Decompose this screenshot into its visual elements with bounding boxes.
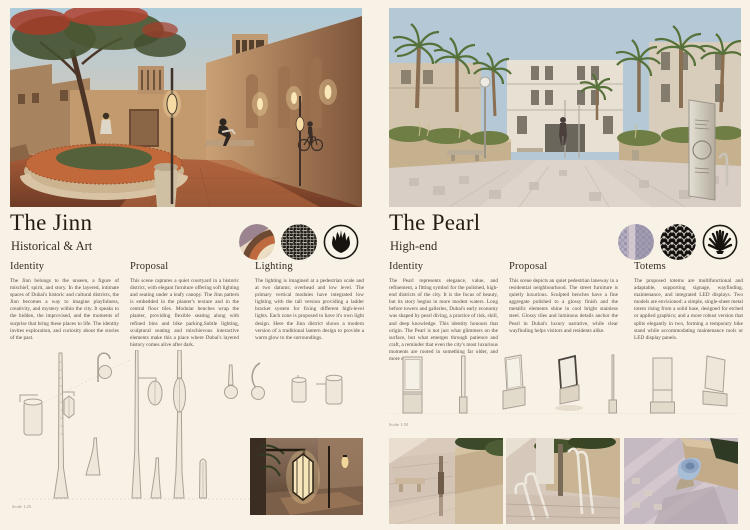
jinn-identity-heading: Identity	[10, 261, 119, 272]
pearl-subtitle: High-end	[390, 239, 437, 254]
pearl-laneway-illustration	[389, 8, 741, 207]
hex-net-pattern-icon	[281, 224, 317, 260]
pearl-title: The Pearl	[389, 210, 480, 236]
jinn-lighting-column: Lighting The lighting is imagined at a p…	[255, 261, 364, 342]
pearl-identity-heading: Identity	[389, 261, 498, 272]
jinn-courtyard-illustration	[10, 8, 362, 207]
pearl-totem-photo-1	[389, 438, 503, 524]
pearl-scale-label: Scale 1:50	[389, 422, 408, 427]
pearl-totem-drawings	[389, 350, 741, 420]
jinn-scale-label: Scale 1:25	[12, 504, 31, 509]
jinn-courtyard-render	[10, 8, 362, 207]
pearl-totem-line-drawings	[389, 350, 741, 420]
jinn-proposal-column: Proposal This scene captures a quiet cou…	[130, 261, 239, 349]
pearl-totems-column: Totems The proposed totems are multifunc…	[634, 261, 743, 342]
pearl-totems-heading: Totems	[634, 261, 743, 272]
pearl-identity-column: Identity The Pearl represents elegance, …	[389, 261, 498, 363]
jinn-swatches	[239, 224, 359, 260]
jinn-lantern-night-photo	[250, 438, 363, 515]
pearl-proposal-column: Proposal This scene depicts an quiet ped…	[509, 261, 618, 335]
jinn-identity-column: Identity The Jinn belongs to the unseen,…	[10, 261, 119, 342]
pearl-laneway-render	[389, 8, 741, 207]
flame-emblem-icon	[323, 224, 359, 260]
jinn-subtitle: Historical & Art	[11, 239, 92, 254]
pearl-totems-body: The proposed totems are multifunctional …	[634, 278, 743, 342]
jinn-title: The Jinn	[10, 210, 92, 236]
pearl-swatches	[618, 224, 738, 260]
pearl-proposal-heading: Proposal	[509, 261, 618, 272]
shell-emblem-icon	[702, 224, 738, 260]
terracotta-material-photo-icon	[239, 224, 275, 260]
pearl-interactive-horn-photo	[624, 438, 738, 524]
fish-scale-pattern-icon	[660, 224, 696, 260]
pearl-proposal-body: This scene depicts an quiet pedestrian l…	[509, 278, 618, 335]
panel-jinn: The Jinn Historical & Art	[10, 8, 362, 524]
jinn-identity-body: The Jinn belongs to the unseen, a figure…	[10, 278, 119, 342]
jinn-lighting-body: The lighting is imagined at a pedestrian…	[255, 278, 364, 342]
jinn-proposal-heading: Proposal	[130, 261, 239, 272]
panel-pearl: The Pearl High-end	[389, 8, 741, 524]
lilac-mosaic-material-photo-icon	[618, 224, 654, 260]
jinn-lighting-heading: Lighting	[255, 261, 364, 272]
jinn-proposal-body: This scene captures a quiet courtyard in…	[130, 278, 239, 349]
pearl-totem-photo-2	[506, 438, 620, 524]
